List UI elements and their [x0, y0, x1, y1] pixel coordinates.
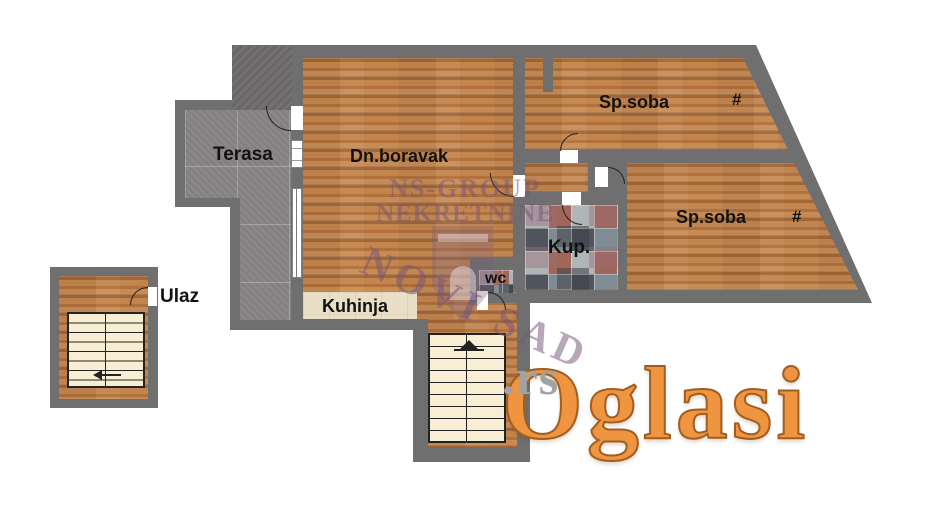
mark-bedroom-top: #	[732, 90, 741, 110]
label-living: Dn.boravak	[350, 146, 448, 167]
entrance-staircase	[67, 312, 145, 388]
entrance-stairs-arrow-base	[101, 374, 121, 376]
label-bathroom: Kup.	[548, 237, 590, 259]
bedroom-top-door-gap	[560, 150, 578, 163]
label-wc: wc	[485, 270, 506, 288]
bedroom-right-door-gap	[595, 167, 608, 187]
corner-wall-block	[232, 45, 292, 110]
watermark-shield-band	[438, 234, 488, 242]
living-window-small	[291, 140, 303, 168]
stairs-up-arrow-icon	[460, 340, 478, 349]
entrance-door-gap	[148, 287, 157, 306]
main-staircase	[428, 333, 506, 443]
oglasi-logo-tld: .rs	[502, 352, 559, 402]
stairs-arrow-base	[454, 349, 484, 351]
mark-bedroom-right: #	[792, 207, 801, 227]
watermark-agency-line2: NEKRETNINE	[335, 200, 595, 228]
label-entrance: Ulaz	[160, 286, 199, 308]
terrace-door-gap	[291, 106, 303, 130]
label-bedroom-top: Sp.soba	[599, 92, 669, 113]
label-bedroom-right: Sp.soba	[676, 207, 746, 228]
floorplan-image: NS-GROUP NEKRETNINE NOVI SAD Terasa Dn.b…	[0, 0, 930, 508]
wall-stub	[543, 58, 553, 92]
living-window-tall	[292, 188, 302, 278]
label-kitchen: Kuhinja	[322, 296, 388, 317]
label-terasa: Terasa	[213, 144, 273, 166]
